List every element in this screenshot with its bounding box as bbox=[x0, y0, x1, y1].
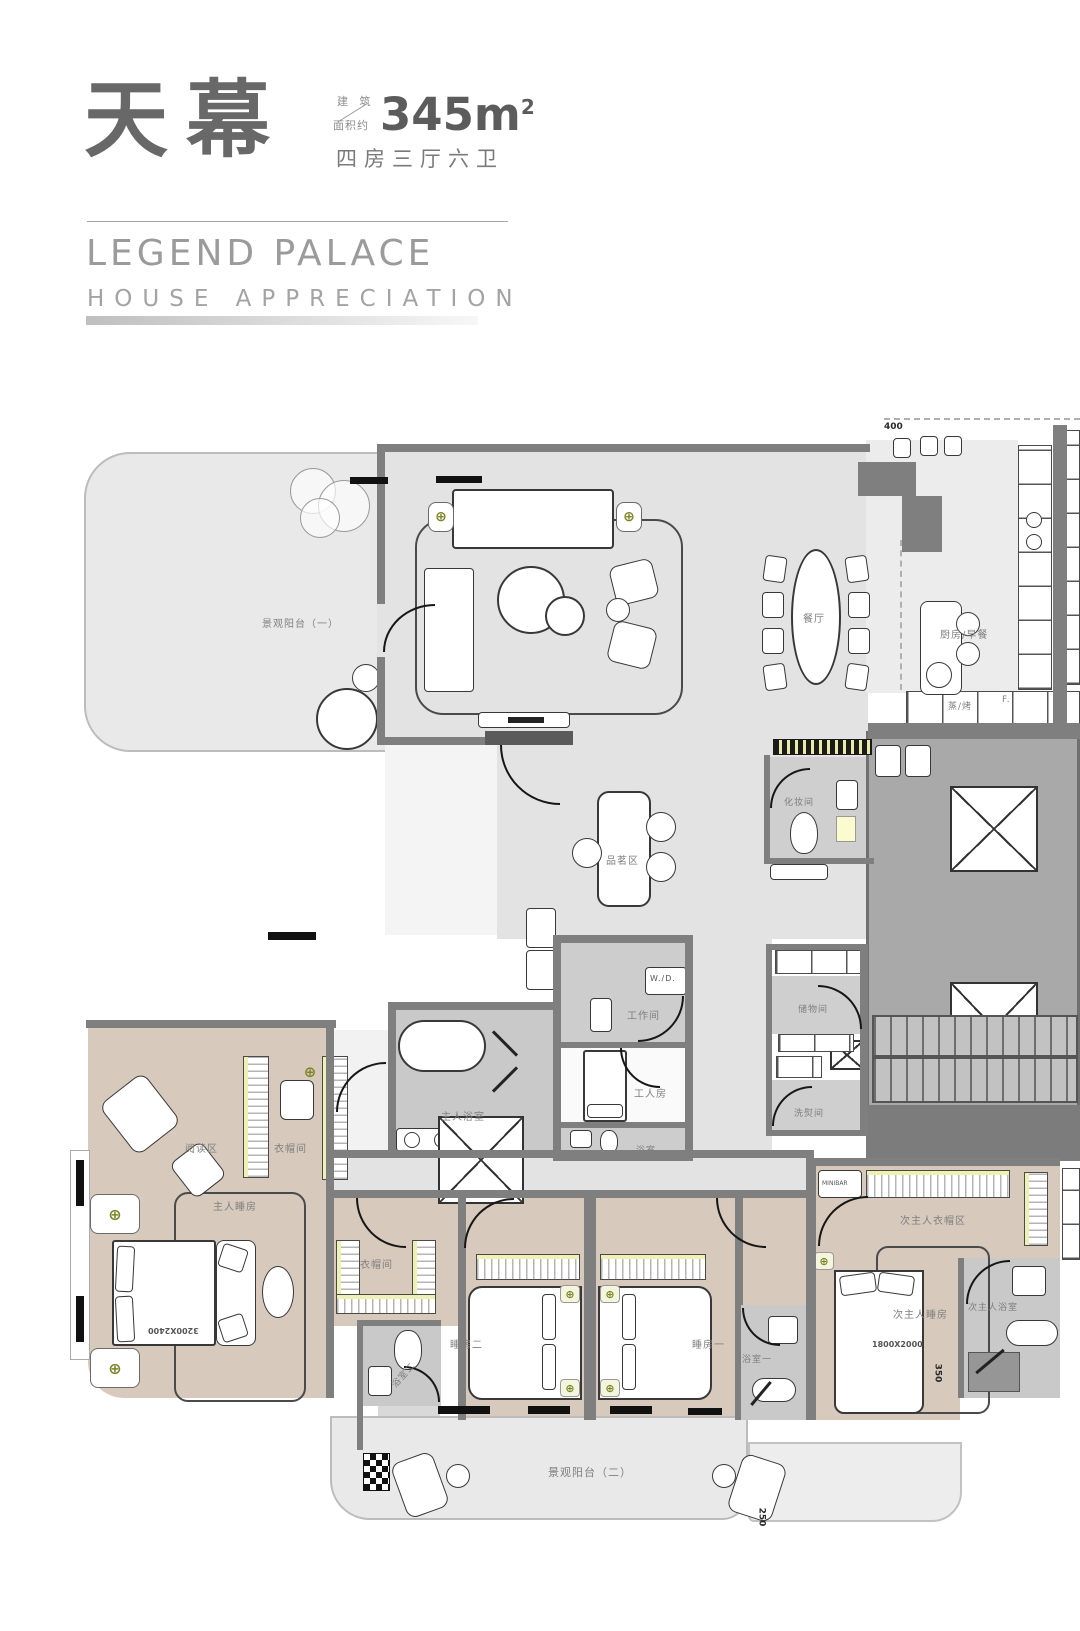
tea-chair bbox=[646, 812, 676, 842]
pillow bbox=[622, 1294, 636, 1340]
bedside-light-icon: ⊕ bbox=[90, 1194, 140, 1234]
balcony-chair bbox=[352, 664, 380, 692]
room-label-second-master-bath: 次主人浴室 bbox=[968, 1300, 1018, 1313]
dimension-master-bed: 3200X2400 bbox=[148, 1326, 199, 1335]
room-label-balcony-one: 景观阳台（一） bbox=[262, 615, 339, 630]
page-title: 天幕 bbox=[84, 78, 288, 162]
neighbor-wardrobe bbox=[1062, 1168, 1080, 1260]
room-label-staff-bath: 浴室 bbox=[636, 1143, 656, 1156]
wall bbox=[868, 723, 1080, 739]
ceiling-light-icon: ⊕ bbox=[300, 1062, 320, 1082]
wall bbox=[958, 1258, 964, 1398]
room-label-staff-room: 工人房 bbox=[634, 1085, 667, 1100]
wall bbox=[357, 1320, 363, 1450]
stove-burner bbox=[1026, 534, 1042, 550]
tv bbox=[508, 717, 544, 723]
wall bbox=[735, 1305, 741, 1420]
wall bbox=[363, 1320, 441, 1326]
room-label-dining: 餐厅 bbox=[803, 610, 825, 625]
ceiling-light-icon: ⊕ bbox=[616, 502, 642, 532]
bathtub bbox=[398, 1020, 486, 1072]
vanity-cabinet bbox=[1012, 1266, 1046, 1296]
wall bbox=[764, 858, 874, 864]
tea-chair bbox=[646, 852, 676, 882]
ceiling-light-icon: ⊕ bbox=[428, 502, 454, 532]
sofa-main bbox=[452, 489, 614, 549]
layout-text: 四房三厅六卫 bbox=[336, 143, 504, 173]
side-table bbox=[446, 1464, 470, 1488]
wardrobe-strip bbox=[1024, 1172, 1048, 1246]
window-bar bbox=[438, 1406, 490, 1414]
roof-dashed-line bbox=[884, 418, 1080, 420]
wall bbox=[330, 1150, 814, 1158]
foyer-cabinet bbox=[526, 950, 556, 990]
dining-chair bbox=[762, 628, 784, 654]
storage-shelf bbox=[778, 1034, 854, 1052]
room-label-tea-area: 品茗区 bbox=[606, 852, 639, 867]
window-bar bbox=[688, 1408, 722, 1415]
wall bbox=[860, 944, 868, 1136]
wall bbox=[330, 1190, 814, 1198]
wall bbox=[377, 657, 385, 745]
wall bbox=[326, 1026, 334, 1398]
dining-chair bbox=[848, 592, 870, 618]
stairs bbox=[872, 1015, 1078, 1103]
coffee-table-small bbox=[545, 596, 585, 636]
tea-chair bbox=[572, 838, 602, 868]
bedside-light-icon: ⊕ bbox=[814, 1252, 834, 1270]
appliance-label-fridge: F. bbox=[1002, 695, 1011, 705]
core-lower-band bbox=[866, 1105, 1080, 1161]
wall bbox=[377, 452, 385, 604]
toilet bbox=[790, 812, 818, 854]
accent-box bbox=[836, 816, 856, 842]
window-bar bbox=[528, 1406, 570, 1414]
staff-bed-pillow bbox=[587, 1104, 623, 1118]
kitchen-sink bbox=[920, 436, 938, 456]
wall bbox=[764, 755, 770, 864]
wall bbox=[584, 1198, 596, 1420]
neighbor-cabinet-column bbox=[1066, 430, 1080, 685]
window-grille bbox=[773, 739, 872, 755]
side-table bbox=[606, 598, 630, 622]
header-divider bbox=[87, 221, 508, 222]
wall bbox=[553, 935, 693, 943]
wall bbox=[377, 737, 487, 745]
bedside-light-icon: ⊕ bbox=[560, 1379, 580, 1397]
area-value: 345m2 bbox=[380, 92, 535, 137]
room-label-bedroom-two: 睡房二 bbox=[450, 1336, 483, 1351]
wall bbox=[377, 444, 870, 452]
kitchen-appliance bbox=[893, 438, 911, 458]
open-boundary-dashed bbox=[900, 540, 902, 690]
wardrobe-strip bbox=[243, 1056, 269, 1178]
work-desk bbox=[590, 998, 612, 1032]
dimension-250: 250 bbox=[756, 1508, 766, 1527]
room-label-bedroom-one: 睡房一 bbox=[692, 1336, 725, 1351]
room-label-master-closet: 衣帽间 bbox=[274, 1140, 307, 1155]
bedside-light-icon: ⊕ bbox=[560, 1285, 580, 1303]
storage-shelf bbox=[776, 1056, 822, 1078]
subtitle-sub: HOUSE APPRECIATION bbox=[87, 286, 523, 312]
window-bar bbox=[76, 1296, 84, 1342]
bedside-light-icon: ⊕ bbox=[600, 1379, 620, 1397]
room-label-powder: 化妆间 bbox=[784, 795, 814, 808]
appliance-label-steam-bake: 蒸/烤 bbox=[948, 699, 972, 712]
room-label-second-master-closet: 次主人衣帽区 bbox=[900, 1212, 966, 1227]
storage-shelf bbox=[775, 950, 863, 974]
room-label-laundry: 洗熨间 bbox=[794, 1106, 824, 1119]
wardrobe-strip bbox=[866, 1170, 1010, 1198]
window-bar bbox=[76, 1160, 84, 1206]
side-table bbox=[712, 1464, 736, 1488]
dimension-400: 400 bbox=[884, 422, 903, 432]
wall bbox=[766, 944, 866, 950]
pillow bbox=[115, 1246, 135, 1293]
island-stool bbox=[956, 642, 980, 666]
vanity-counter bbox=[770, 864, 828, 880]
wardrobe-strip bbox=[600, 1254, 706, 1280]
bathtub bbox=[1006, 1320, 1058, 1346]
wall bbox=[814, 1158, 1060, 1166]
room-label-balcony-two: 景观阳台（二） bbox=[548, 1464, 632, 1480]
elevator-shaft bbox=[950, 786, 1038, 872]
bedside-light-icon: ⊕ bbox=[90, 1348, 140, 1388]
kettle-icon bbox=[926, 662, 952, 688]
wall-column bbox=[902, 496, 942, 552]
window-bar bbox=[268, 932, 316, 940]
wall bbox=[766, 1130, 866, 1136]
room-label-storage: 储物间 bbox=[798, 1002, 828, 1015]
dressing-chair bbox=[280, 1080, 314, 1120]
checkered-mat bbox=[363, 1453, 390, 1491]
wall bbox=[86, 1020, 336, 1028]
hallway-mid-floor bbox=[690, 935, 772, 1160]
window-bar bbox=[350, 477, 388, 484]
appliance-label-minibar: MINIBAR bbox=[822, 1180, 848, 1187]
foyer-floor bbox=[385, 745, 497, 935]
wall-unit-separator bbox=[1053, 425, 1067, 733]
kitchen-sink bbox=[944, 436, 962, 456]
bedside-light-icon: ⊕ bbox=[600, 1285, 620, 1303]
area-label-line1: 建 筑 bbox=[337, 96, 375, 107]
header-gradient-bar bbox=[86, 316, 478, 325]
stove-burner bbox=[1026, 512, 1042, 528]
dining-chair bbox=[762, 663, 787, 692]
dining-chair bbox=[848, 628, 870, 654]
pillow bbox=[115, 1296, 135, 1343]
room-label-master-bath: 主人浴室 bbox=[441, 1108, 485, 1123]
window-bar bbox=[436, 476, 482, 483]
wall bbox=[553, 1122, 693, 1128]
wardrobe-strip bbox=[476, 1254, 580, 1280]
stairs-rail bbox=[872, 1055, 1078, 1059]
entry-threshold bbox=[485, 731, 573, 745]
pouf bbox=[262, 1266, 294, 1318]
foyer-cabinet bbox=[526, 908, 556, 948]
wall bbox=[458, 1198, 466, 1420]
room-label-second-master-bedroom: 次主人睡房 bbox=[893, 1306, 948, 1321]
hallway-lower-floor bbox=[330, 1158, 814, 1190]
room-label-reading-area: 阅读区 bbox=[185, 1140, 218, 1155]
dining-chair bbox=[762, 555, 787, 584]
utility-box bbox=[905, 745, 931, 777]
room-label-workroom: 工作间 bbox=[627, 1007, 660, 1022]
vanity-cabinet bbox=[836, 780, 858, 810]
wardrobe-strip bbox=[336, 1294, 436, 1314]
wall bbox=[766, 944, 772, 1136]
dimension-second-bed: 1800X2000 bbox=[872, 1340, 923, 1349]
dining-chair bbox=[844, 555, 869, 584]
window-bar bbox=[610, 1406, 652, 1414]
pillow bbox=[542, 1294, 556, 1340]
area-number: 345m bbox=[380, 88, 521, 141]
room-label-closet-two: 衣帽间 bbox=[360, 1256, 393, 1271]
plant-icon bbox=[300, 498, 340, 538]
sink bbox=[570, 1130, 592, 1148]
subtitle-en: LEGEND PALACE bbox=[86, 233, 434, 274]
appliance-label-washer-dryer: W./D. bbox=[650, 974, 676, 983]
wall bbox=[806, 1158, 816, 1420]
pillow bbox=[542, 1344, 556, 1390]
balcony-table bbox=[316, 688, 378, 750]
room-label-bath-one: 浴室一 bbox=[742, 1352, 772, 1365]
kitchen-cabinet-column bbox=[1018, 445, 1052, 690]
pillow bbox=[622, 1344, 636, 1390]
room-label-master-bedroom: 主人睡房 bbox=[213, 1198, 257, 1213]
room-label-kitchen: 厨房/早餐 bbox=[940, 626, 988, 641]
dining-chair bbox=[762, 592, 784, 618]
utility-box bbox=[875, 745, 901, 777]
tea-table bbox=[597, 791, 651, 907]
wall-column bbox=[858, 462, 916, 496]
page: 天幕 建 筑 面积约 345m2 四房三厅六卫 LEGEND PALACE HO… bbox=[0, 0, 1080, 1631]
area-label-line2: 面积约 bbox=[333, 120, 369, 131]
area-exponent: 2 bbox=[521, 95, 535, 119]
wall bbox=[388, 1002, 396, 1158]
wall bbox=[388, 1002, 558, 1010]
dimension-350: 350 bbox=[932, 1364, 942, 1383]
basin bbox=[404, 1132, 420, 1148]
dining-chair bbox=[844, 663, 869, 692]
